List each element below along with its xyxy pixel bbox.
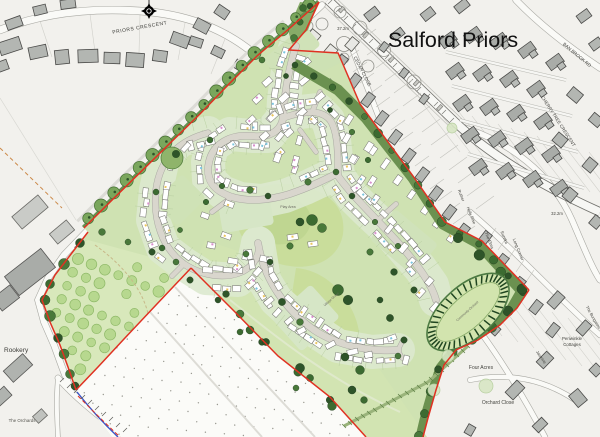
svg-text:Four Acres: Four Acres	[469, 365, 494, 371]
svg-text:32.2m: 32.2m	[551, 211, 563, 216]
svg-text:Rookery: Rookery	[4, 347, 29, 354]
svg-text:Orchard Close: Orchard Close	[482, 400, 514, 406]
svg-text:37.2m: 37.2m	[337, 26, 349, 31]
svg-text:Play Area: Play Area	[280, 205, 295, 209]
svg-text:The Orchards: The Orchards	[9, 418, 37, 423]
svg-text:Periwinkle: Periwinkle	[562, 336, 583, 341]
svg-text:Cottages: Cottages	[563, 342, 581, 347]
svg-text:Salford Priors: Salford Priors	[388, 28, 518, 52]
